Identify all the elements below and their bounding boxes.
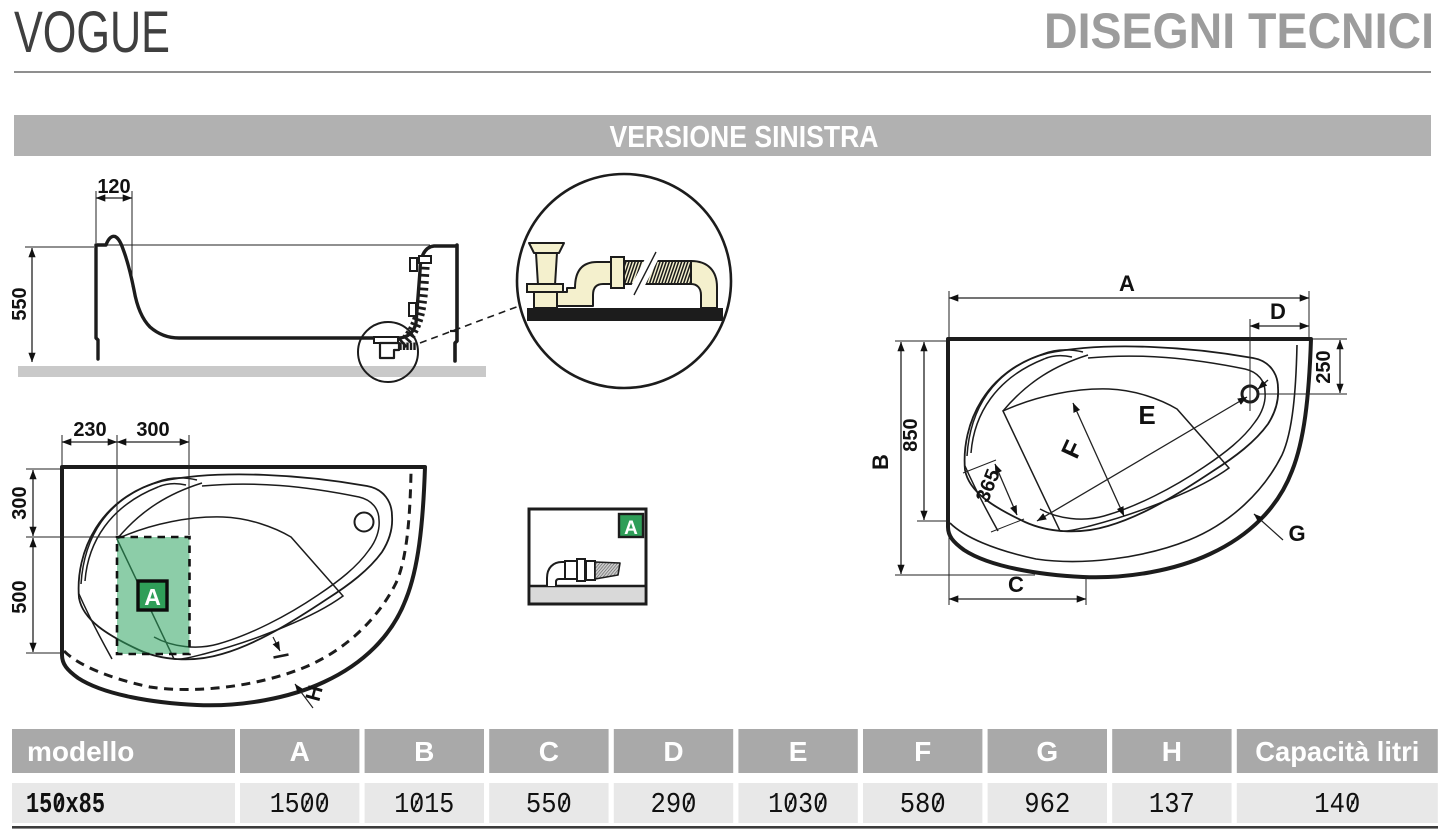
svg-text:550: 550 — [9, 287, 31, 320]
svg-text:H: H — [302, 683, 328, 704]
svg-text:E: E — [1138, 400, 1155, 430]
svg-text:137: 137 — [1149, 788, 1195, 821]
svg-text:D: D — [1270, 299, 1286, 324]
svg-text:B: B — [414, 736, 434, 767]
svg-text:500: 500 — [9, 580, 31, 613]
svg-text:962: 962 — [1024, 788, 1070, 821]
svg-text:550: 550 — [526, 788, 572, 821]
svg-text:DISEGNI TECNICI: DISEGNI TECNICI — [1044, 3, 1434, 59]
svg-text:Capacità litri: Capacità litri — [1255, 736, 1419, 767]
svg-text:F: F — [914, 736, 931, 767]
svg-text:230: 230 — [73, 419, 106, 441]
svg-text:A: A — [290, 736, 310, 767]
svg-text:A: A — [624, 518, 638, 539]
svg-text:150x85: 150x85 — [26, 788, 105, 821]
svg-text:G: G — [1288, 521, 1305, 546]
svg-text:E: E — [789, 736, 808, 767]
svg-text:D: D — [663, 736, 683, 767]
svg-text:H: H — [1162, 736, 1182, 767]
svg-text:modello: modello — [27, 736, 134, 767]
svg-text:1015: 1015 — [394, 788, 454, 821]
svg-text:B: B — [868, 454, 893, 470]
svg-text:850: 850 — [900, 418, 922, 451]
svg-text:140: 140 — [1314, 788, 1360, 821]
svg-text:120: 120 — [97, 176, 130, 198]
svg-text:300: 300 — [136, 419, 169, 441]
svg-text:VOGUE: VOGUE — [14, 0, 170, 65]
svg-text:580: 580 — [900, 788, 946, 821]
svg-text:C: C — [539, 736, 559, 767]
svg-text:A: A — [1119, 271, 1135, 296]
svg-text:300: 300 — [9, 486, 31, 519]
svg-text:C: C — [1008, 572, 1024, 597]
svg-text:G: G — [1036, 736, 1058, 767]
svg-text:290: 290 — [651, 788, 697, 821]
svg-text:VERSIONE SINISTRA: VERSIONE SINISTRA — [610, 119, 879, 154]
svg-text:A: A — [144, 584, 161, 610]
svg-text:250: 250 — [1313, 350, 1335, 383]
